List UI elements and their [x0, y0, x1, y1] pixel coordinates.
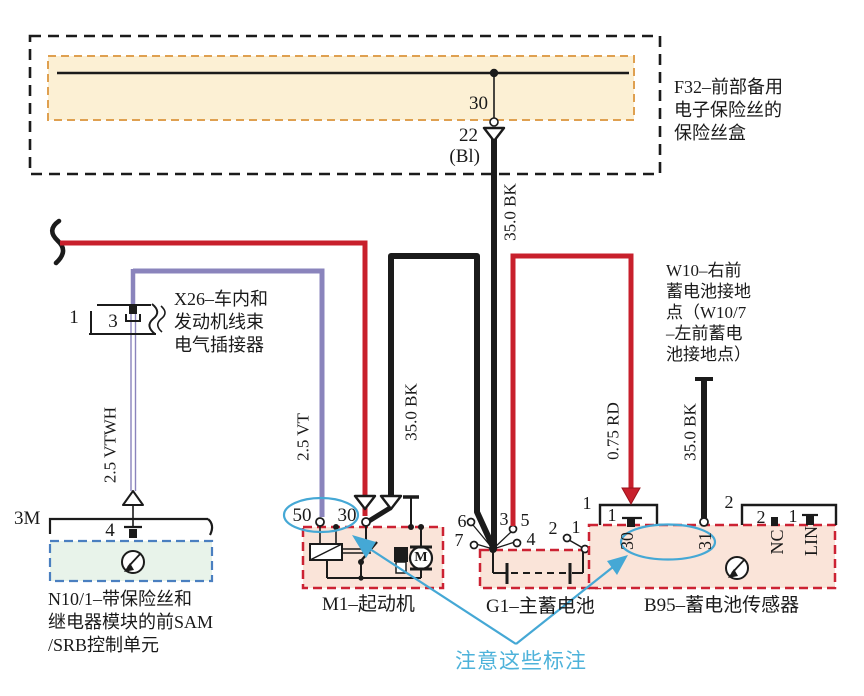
g1-node-dot — [489, 545, 497, 553]
w10-label: W10–右前 蓄电池接地 点（W10/7 –左前蓄电 池接地点） — [666, 260, 751, 365]
pin-socket-icon — [126, 314, 140, 321]
x26-pin1-label: 1 — [66, 308, 82, 327]
m1-label: M1–起动机 — [322, 595, 415, 614]
pin-contact-icon — [771, 517, 778, 526]
wiring-diagram: F32–前部备用 电子保险丝的 保险丝盒 30 22 (Bl) X26–车内和 … — [0, 0, 864, 696]
m1-terminal-50-label: 50 — [288, 506, 316, 525]
n10-sam-module — [50, 491, 212, 581]
wire-label-25vtwh: 2.5 VTWH — [102, 407, 119, 483]
g1-pin4-label: 4 — [524, 530, 538, 548]
g1-pin7-label: 7 — [452, 531, 466, 549]
arrow-down-icon — [484, 128, 504, 141]
g1-pin6-label: 6 — [455, 512, 469, 530]
b95-term-31-label: 31 — [696, 532, 714, 550]
wire-label-35bk-ground: 35.0 BK — [682, 403, 699, 461]
x26-pin3-label: 3 — [105, 312, 121, 331]
n10-label: N10/1–带保险丝和 继电器模块的前SAM /SRB控制单元 — [48, 588, 213, 657]
g1-pin1-label: 1 — [569, 518, 583, 536]
g1-pin2-label: 2 — [546, 519, 560, 537]
b95-conn2-label: 2 — [722, 493, 736, 511]
pin4-contact-icon — [129, 529, 137, 538]
fuse-element-icon — [394, 547, 408, 562]
wire-label-35bk-branch: 35.0 BK — [403, 383, 420, 441]
g1-pin5-label: 5 — [518, 511, 532, 529]
x26-connector — [89, 304, 165, 334]
bracket-3m-label: 3M — [14, 509, 40, 528]
terminal-30-label: 30 — [458, 94, 488, 113]
b95-conn2-pin1-label: 1 — [786, 507, 800, 525]
annotation-note: 注意这些标注 — [430, 651, 612, 672]
b95-conn2-pin2-label: 2 — [754, 508, 768, 526]
x26-label-line3: 电气插接器 — [174, 334, 268, 357]
fuse-code-label: (Bl) — [432, 147, 480, 166]
terminal-30-circle — [362, 518, 370, 526]
pin-contact-icon — [627, 519, 635, 527]
x26-label: X26–车内和 发动机线束 电气插接器 — [174, 288, 268, 357]
w10-label-line4: –左前蓄电 — [666, 323, 751, 344]
n10-label-line2: 继电器模块的前SAM — [48, 611, 213, 634]
arrow-down-icon — [381, 496, 401, 509]
wire-label-075rd: 0.75 RD — [605, 402, 622, 460]
f32-label: F32–前部备用 电子保险丝的 保险丝盒 — [674, 76, 783, 145]
w10-label-line2: 蓄电池接地 — [666, 281, 751, 302]
n10-label-line1: N10/1–带保险丝和 — [48, 588, 213, 611]
pin-contact-icon — [806, 516, 814, 525]
g1-pin3-label: 3 — [497, 510, 511, 528]
b95-conn1-label: 1 — [580, 494, 594, 512]
b95-term-lin-label: LIN — [802, 526, 820, 556]
f32-label-line1: F32–前部备用 — [674, 76, 783, 99]
x26-label-line1: X26–车内和 — [174, 288, 268, 311]
bracket-curl-icon — [208, 519, 212, 535]
wire-bk-diagonal — [369, 508, 390, 521]
w10-label-line5: 池接地点） — [666, 344, 751, 365]
b95-term-nc-label: NC — [768, 529, 786, 554]
w10-label-line1: W10–右前 — [666, 260, 751, 281]
fuse-22-label: 22 — [448, 126, 478, 145]
connector-curl-icon — [149, 304, 157, 334]
w10-label-line3: 点（W10/7 — [666, 302, 751, 323]
fuse-terminal-circle — [490, 118, 498, 126]
red-arrow-icon — [622, 488, 640, 504]
wire-label-25vt: 2.5 VT — [295, 413, 312, 461]
connector-curl2-icon — [158, 306, 165, 332]
arrow-up-icon — [123, 491, 143, 505]
terminal-31-circle — [700, 518, 708, 526]
bus-bar — [48, 56, 634, 120]
pin-contact-icon — [129, 306, 137, 314]
g1-label: G1–主蓄电池 — [486, 597, 595, 616]
f32-label-line3: 保险丝盒 — [674, 122, 783, 145]
pin4-label: 4 — [102, 521, 118, 540]
fuse-box-f32 — [30, 36, 660, 174]
b95-conn1-pin-label: 1 — [605, 506, 619, 524]
b95-label: B95–蓄电池传感器 — [644, 596, 799, 615]
x26-label-line2: 发动机线束 — [174, 311, 268, 334]
n10-label-line3: /SRB控制单元 — [48, 634, 213, 657]
wire-075rd — [513, 256, 631, 526]
f32-label-line2: 电子保险丝的 — [674, 99, 783, 122]
terminal-50-circle — [316, 518, 324, 526]
wire-label-35bk-main: 35.0 BK — [502, 183, 519, 241]
b95-term-30-label: 30 — [618, 532, 636, 550]
motor-m-label: M — [414, 551, 428, 565]
m1-terminal-30-label: 30 — [333, 506, 361, 525]
